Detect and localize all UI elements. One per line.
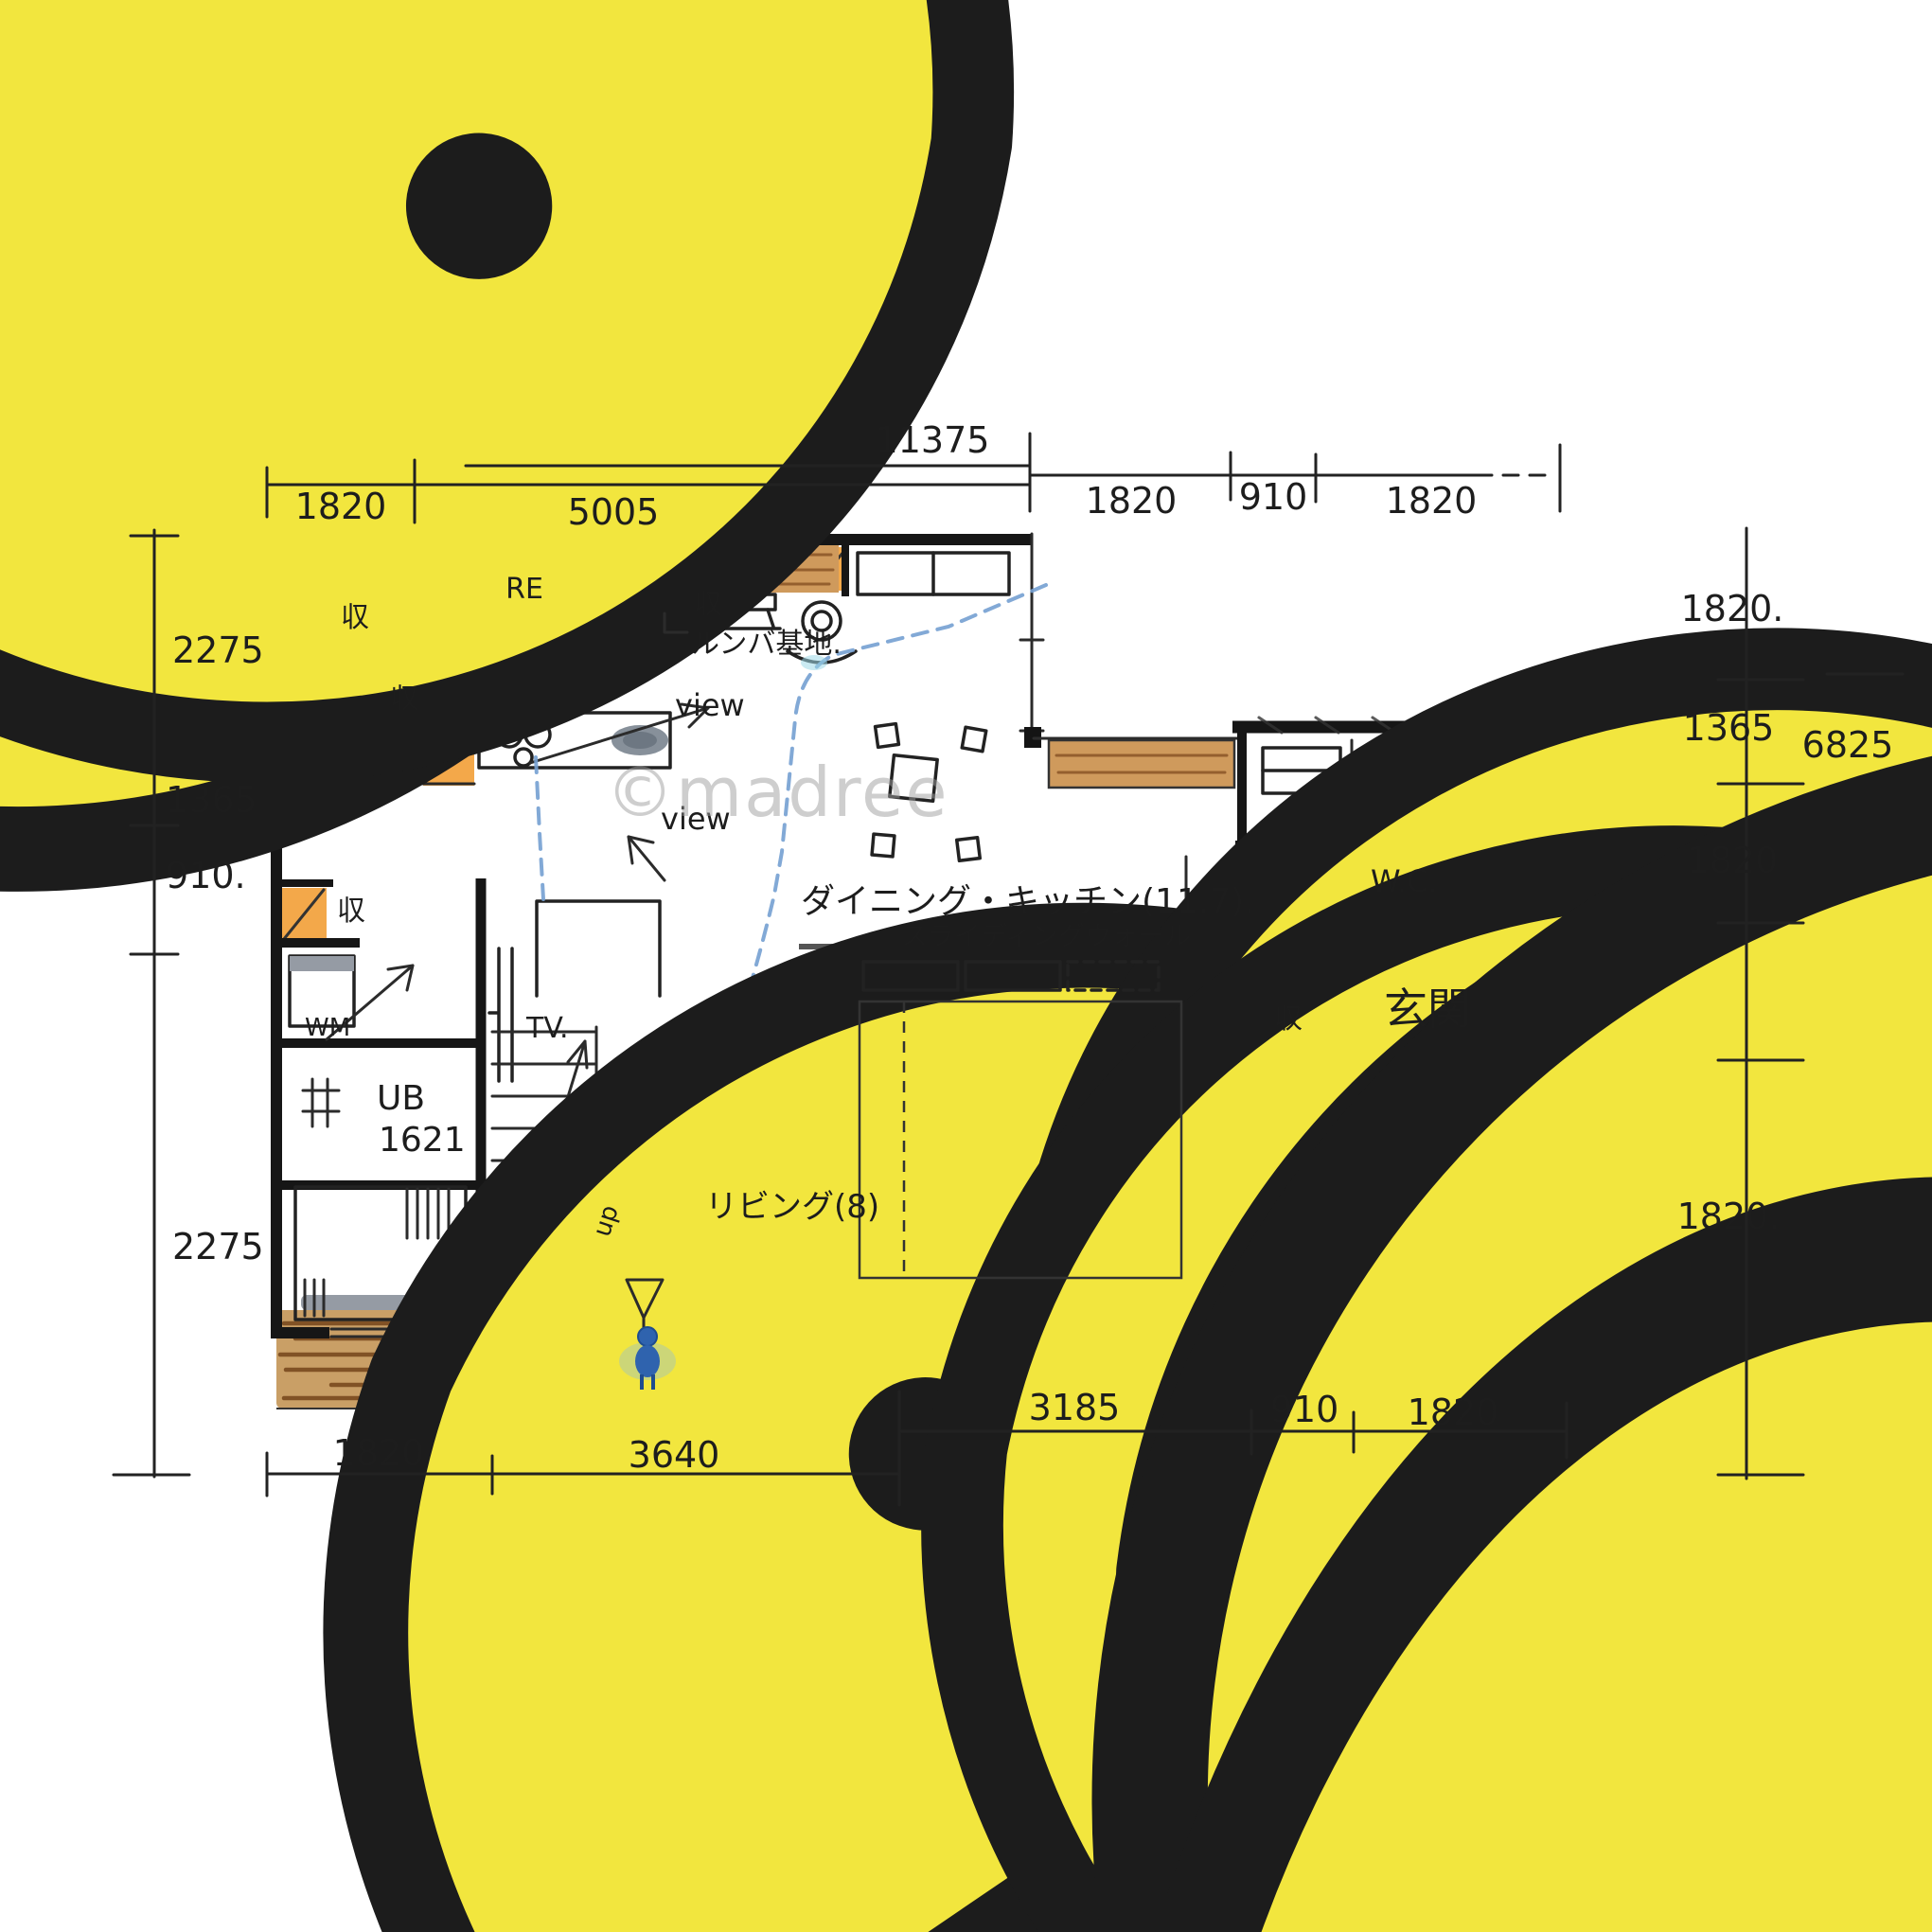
- tv-unit: [489, 948, 512, 1081]
- storage-label-2: 収: [390, 682, 418, 716]
- storage-label-1: 収: [341, 601, 369, 634]
- dim-right-overall: 6825: [1802, 724, 1894, 766]
- floor-plan-sketch: RE 収 収 収 収 収 ルンバ基地. view view ダイニング・キッチン…: [0, 0, 1932, 1932]
- watermark: ©madree: [606, 753, 949, 832]
- dim-right-3: 1820.: [1677, 1196, 1781, 1237]
- roomba-path-short: [536, 757, 543, 899]
- dim-left-2: 910.: [166, 855, 246, 896]
- dim-top-left-1: 5005: [568, 491, 660, 533]
- unit-bath-size-label: 1621: [379, 1121, 466, 1160]
- sliding-wall-label: スライディングウォール: [901, 920, 1191, 951]
- dim-bottom-left-1: 3640: [629, 1434, 720, 1476]
- roomba-base-label: ルンバ基地.: [691, 628, 842, 661]
- bird-dining-se: [0, 0, 1018, 790]
- dim-bottom-right-2: 1820: [1408, 1391, 1499, 1433]
- dim-top-right-1: 910: [1239, 476, 1308, 518]
- wm-label: WM: [305, 1014, 350, 1042]
- dim-right-1: 1365: [1683, 707, 1775, 749]
- entrance-label: 玄関: [1384, 984, 1471, 1035]
- storage-label-3: 収: [337, 895, 365, 928]
- study-counter: [1049, 740, 1234, 788]
- dim-bottom-right-1: 910: [1270, 1389, 1339, 1430]
- storage-label-5: 収: [1274, 1002, 1303, 1036]
- dim-left-0: 2275: [172, 629, 264, 671]
- dim-top-overall: 11375: [876, 419, 990, 461]
- view-label-1: view: [675, 687, 745, 723]
- unit-bath-label: UB: [377, 1079, 425, 1118]
- dim-right-0: 1820.: [1681, 588, 1784, 629]
- wc-label: W.C.: [1371, 863, 1438, 899]
- dim-right-2: 1820: [1687, 840, 1779, 881]
- living-label: リビング(8): [705, 1188, 879, 1226]
- bath-window-symbol: [303, 1079, 339, 1126]
- fridge-label: RE: [505, 573, 543, 606]
- dim-top-left-0: 1820: [295, 486, 387, 527]
- storage-label-4: 収: [694, 588, 722, 621]
- dim-bottom-left-0: 1820: [333, 1432, 425, 1474]
- tv-label: TV.: [525, 1012, 569, 1045]
- dim-bottom-right-0: 3185: [1029, 1387, 1121, 1428]
- floor-plan-page: RE 収 収 収 収 収 ルンバ基地. view view ダイニング・キッチン…: [0, 0, 1932, 1932]
- sofa: [537, 901, 660, 996]
- dim-left-3: 2275: [172, 1226, 264, 1267]
- dim-top-right-2: 1820: [1386, 480, 1478, 522]
- dining-kitchen-label: ダイニング・キッチン(11.7).: [801, 882, 1255, 921]
- dim-top-right-0: 1820: [1086, 480, 1178, 522]
- dim-left-1: 1365: [166, 779, 257, 821]
